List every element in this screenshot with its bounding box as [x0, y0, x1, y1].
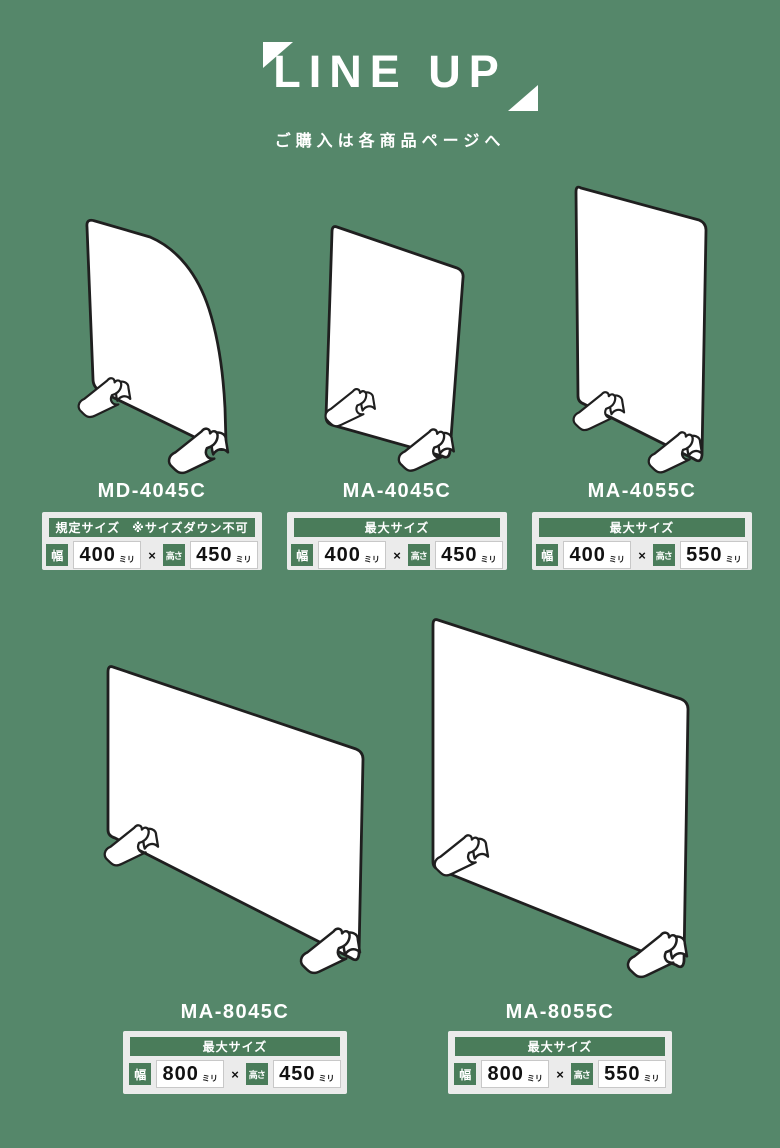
spec-header: 最大サイズ: [539, 518, 745, 537]
height-label: 高さ: [408, 544, 430, 566]
width-value: 800: [488, 1063, 524, 1086]
spec-box-md-4045c: 規定サイズ ※サイズダウン不可 幅 400 ミリ × 高さ 450 ミリ: [42, 512, 262, 570]
width-label: 幅: [46, 544, 68, 566]
width-value-box: 400 ミリ: [563, 541, 631, 569]
height-value-box: 450 ミリ: [435, 541, 503, 569]
width-label: 幅: [536, 544, 558, 566]
model-name-md-4045c: MD-4045C: [42, 480, 262, 503]
size-note-label: ※サイズダウン不可: [132, 519, 248, 536]
model-name-ma-8045c: MA-8045C: [123, 1001, 347, 1024]
width-value: 800: [163, 1063, 199, 1086]
height-label: 高さ: [246, 1063, 268, 1085]
height-value-box: 450 ミリ: [273, 1060, 341, 1088]
width-value: 400: [570, 544, 606, 567]
spec-header: 最大サイズ: [294, 518, 500, 537]
width-label: 幅: [291, 544, 313, 566]
height-label: 高さ: [571, 1063, 593, 1085]
height-value: 550: [604, 1063, 640, 1086]
size-type-label: 最大サイズ: [528, 1038, 593, 1055]
panel-illustration-ma-4055c: [558, 181, 723, 479]
panel-illustration-ma-8045c: [100, 655, 370, 980]
height-label: 高さ: [163, 544, 185, 566]
width-label: 幅: [454, 1063, 476, 1085]
height-value-box: 550 ミリ: [598, 1060, 666, 1088]
width-unit: ミリ: [119, 554, 135, 565]
spec-header: 規定サイズ ※サイズダウン不可: [49, 518, 255, 537]
model-name-ma-4055c: MA-4055C: [532, 480, 752, 503]
width-value-box: 400 ミリ: [73, 541, 141, 569]
height-unit: ミリ: [318, 1073, 334, 1084]
panel-illustration-ma-8055c: [420, 612, 700, 984]
spec-header: 最大サイズ: [130, 1037, 340, 1056]
width-value: 400: [80, 544, 116, 567]
page-title: LINE UP: [0, 46, 780, 98]
height-value: 450: [441, 544, 477, 567]
model-name-ma-4045c: MA-4045C: [287, 480, 507, 503]
panel-illustration-ma-4045c: [318, 214, 468, 482]
spec-box-ma-8045c: 最大サイズ 幅 800 ミリ × 高さ 450 ミリ: [123, 1031, 347, 1094]
height-label: 高さ: [653, 544, 675, 566]
width-value-box: 400 ミリ: [318, 541, 386, 569]
height-unit: ミリ: [235, 554, 251, 565]
spec-header: 最大サイズ: [455, 1037, 665, 1056]
times-symbol: ×: [231, 1067, 239, 1082]
size-type-label: 最大サイズ: [203, 1038, 268, 1055]
corner-triangle-right-icon: [508, 85, 538, 111]
size-type-label: 最大サイズ: [610, 519, 675, 536]
width-unit: ミリ: [527, 1073, 543, 1084]
spec-box-ma-4055c: 最大サイズ 幅 400 ミリ × 高さ 550 ミリ: [532, 512, 752, 570]
lineup-banner: LINE UP ご購入は各商品ページへ MD-4045C 規定サイズ ※サイズダ…: [0, 0, 780, 1148]
height-unit: ミリ: [480, 554, 496, 565]
height-unit: ミリ: [725, 554, 741, 565]
spec-row: 幅 400 ミリ × 高さ 450 ミリ: [49, 541, 255, 569]
spec-row: 幅 400 ミリ × 高さ 550 ミリ: [539, 541, 745, 569]
times-symbol: ×: [638, 548, 646, 563]
width-label: 幅: [129, 1063, 151, 1085]
width-value-box: 800 ミリ: [156, 1060, 224, 1088]
width-unit: ミリ: [609, 554, 625, 565]
height-unit: ミリ: [643, 1073, 659, 1084]
panel-illustration-md-4045c: [62, 203, 242, 478]
page-subtitle: ご購入は各商品ページへ: [0, 127, 780, 151]
spec-box-ma-4045c: 最大サイズ 幅 400 ミリ × 高さ 450 ミリ: [287, 512, 507, 570]
spec-box-ma-8055c: 最大サイズ 幅 800 ミリ × 高さ 550 ミリ: [448, 1031, 672, 1094]
width-value-box: 800 ミリ: [481, 1060, 549, 1088]
times-symbol: ×: [556, 1067, 564, 1082]
width-unit: ミリ: [364, 554, 380, 565]
height-value-box: 450 ミリ: [190, 541, 258, 569]
width-unit: ミリ: [202, 1073, 218, 1084]
times-symbol: ×: [393, 548, 401, 563]
height-value: 450: [196, 544, 232, 567]
times-symbol: ×: [148, 548, 156, 563]
spec-row: 幅 400 ミリ × 高さ 450 ミリ: [294, 541, 500, 569]
size-type-label: 規定サイズ: [56, 519, 121, 536]
height-value: 450: [279, 1063, 315, 1086]
height-value-box: 550 ミリ: [680, 541, 748, 569]
height-value: 550: [686, 544, 722, 567]
size-type-label: 最大サイズ: [365, 519, 430, 536]
width-value: 400: [325, 544, 361, 567]
spec-row: 幅 800 ミリ × 高さ 450 ミリ: [130, 1060, 340, 1088]
model-name-ma-8055c: MA-8055C: [448, 1001, 672, 1024]
spec-row: 幅 800 ミリ × 高さ 550 ミリ: [455, 1060, 665, 1088]
